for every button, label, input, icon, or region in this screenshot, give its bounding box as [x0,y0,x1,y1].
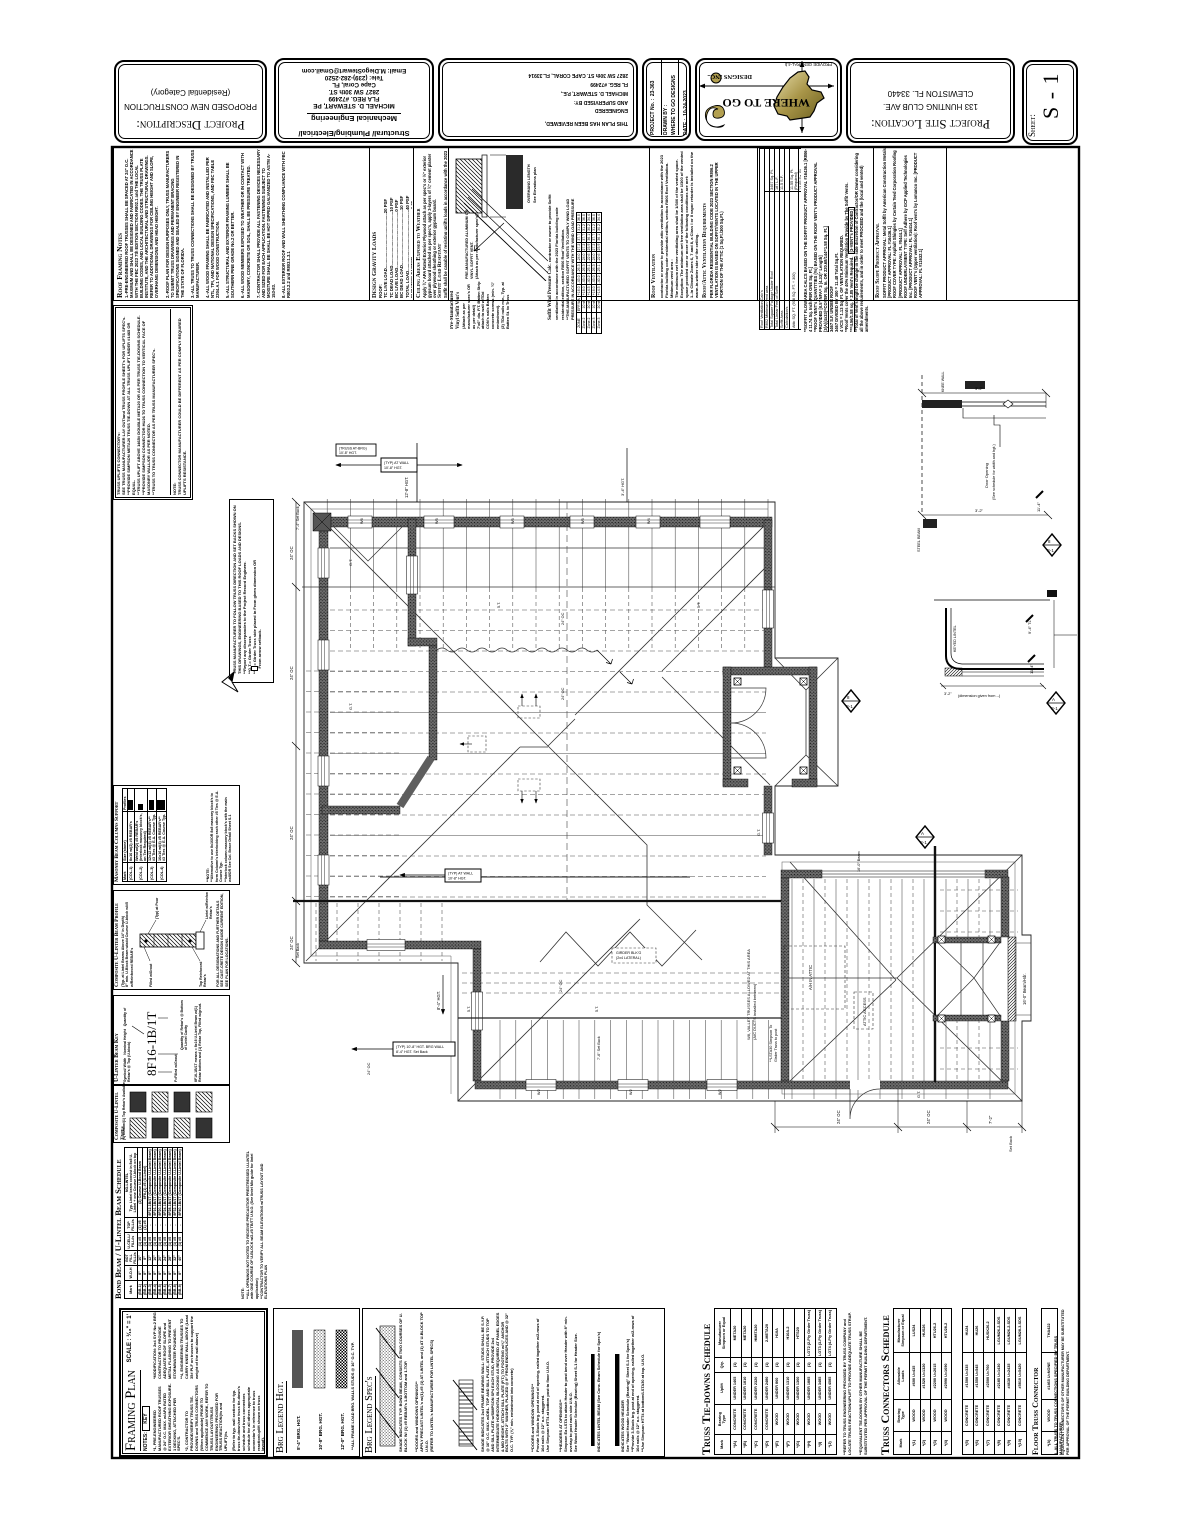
svg-text:10'-8" HGT.: 10'-8" HGT. [339,451,357,455]
svg-text:Door Opening: Door Opening [984,463,989,488]
svg-text:OVERHANG LENGTH: OVERHANG LENGTH [527,164,531,203]
svg-text:(Typ) at Pour: (Typ) at Pour [155,897,159,919]
svg-text:(Attach as per manufacturer sp: (Attach as per manufacturer spec's) [475,214,479,279]
svg-text:KNEE WALL: KNEE WALL [941,372,945,392]
svg-text:Rebar's: Rebar's [203,974,207,987]
svg-text:8'-4" HGT. Set Back: 8'-4" HGT. Set Back [396,1050,428,1054]
svg-text:W8, VALLEY TRUSSES ALLOWED AT: W8, VALLEY TRUSSES ALLOWED AT THIS AREA [746,949,751,1040]
svg-text:VINYL SOFFIT VENT.: VINYL SOFFIT VENT. [470,241,474,279]
svg-text:24" OC: 24" OC [289,936,294,950]
svg-text:STEEL BEAM: STEEL BEAM [917,528,921,552]
svg-text:10'-8" HGT.: 10'-8" HGT. [384,466,403,470]
svg-text:**ALL FRAME LOAD BRG. WALLS ST: **ALL FRAME LOAD BRG. WALLS STUDS @ 16" … [350,1342,355,1450]
svg-text:W2: W2 [718,1089,722,1095]
svg-text:24" OC: 24" OC [836,1110,841,1124]
svg-text:ATTIC ACCESS: ATTIC ACCESS [862,997,867,1026]
svg-text:S-1: S-1 [846,704,853,709]
svg-text:(See schedule for width and hg: (See schedule for width and hgt.) [992,444,996,500]
svg-text:(TYP) AT WALL: (TYP) AT WALL [448,872,473,876]
svg-text:8'-4" HGT.: 8'-4" HGT. [436,991,441,1010]
svg-text:S-1: S-1 [1047,548,1054,553]
svg-text:5.T.: 5.T. [697,602,701,608]
svg-text:G.T.: G.T. [348,559,353,566]
svg-text:7'-4" Set Back: 7'-4" Set Back [296,506,300,530]
svg-text:5.T.: 5.T. [595,1006,599,1012]
svg-text:24" OC: 24" OC [367,1062,371,1075]
svg-text:12'-8" HGT.: 12'-8" HGT. [404,477,409,498]
svg-text:KEYED LINTEL: KEYED LINTEL [953,625,957,652]
svg-text:(TRUSS AT-BRG): (TRUSS AT-BRG) [339,447,367,451]
svg-text:Filled w/Grout: Filled w/Grout [149,963,153,987]
svg-text:S-1: S-1 [920,840,927,845]
svg-text:12'-0" BRG. HGT.: 12'-0" BRG. HGT. [340,1413,345,1450]
svg-text:3'-2": 3'-2" [944,692,952,696]
svg-text:8'-4" BRG. HGT.: 8'-4" BRG. HGT. [296,1416,301,1450]
svg-text:Set Back: Set Back [1008,1136,1013,1152]
svg-text:24" OC: 24" OC [559,979,563,992]
svg-text:A/H IN ATTIC: A/H IN ATTIC [808,965,813,990]
svg-text:24" OC: 24" OC [289,546,294,560]
svg-text:A: A [1052,697,1055,702]
svg-text:10'-8" HGT.: 10'-8" HGT. [448,877,467,881]
svg-text:PRE-MANUFACTURED ALUMINUM OR: PRE-MANUFACTURED ALUMINUM OR [465,209,469,279]
svg-text:See Elevations plan: See Elevations plan [533,167,537,203]
svg-text:A: A [921,831,924,836]
svg-text:WHERE TO GO: WHERE TO GO [722,96,810,110]
svg-text:16'-0" Beam/Hdr.: 16'-0" Beam/Hdr. [1022,973,1027,1005]
svg-text:W2: W2 [629,1089,633,1095]
svg-text:11'-4": 11'-4" [1029,664,1034,674]
svg-text:W5: W5 [511,518,515,524]
svg-text:DESIGNS INC..: DESIGNS INC.. [707,73,752,80]
svg-text:24" OC: 24" OC [561,687,565,700]
svg-text:24" OC: 24" OC [561,612,565,625]
svg-text:24" OC: 24" OC [926,1110,931,1124]
svg-text:7'-2": 7'-2" [988,1115,993,1124]
svg-text:(TYP) AT WALL: (TYP) AT WALL [384,461,409,465]
svg-text:(TYP) 10'-8" HGT. BRG WALL: (TYP) 10'-8" HGT. BRG WALL [396,1045,444,1049]
svg-text:(A/C DUCTS installed between): (A/C DUCTS installed between) [752,983,757,1040]
svg-text:11'-4": 11'-4" [1036,502,1041,512]
svg-text:3'-2": 3'-2" [975,508,984,513]
svg-text:10'-8" BRG. HGT.: 10'-8" BRG. HGT. [318,1413,323,1450]
svg-text:W6: W6 [360,518,364,524]
svg-text:3'-2": 3'-2" [975,386,984,391]
svg-text:16'-0" Beam: 16'-0" Beam [857,851,861,872]
svg-text:GIRDER BLK'G: GIRDER BLK'G [616,951,641,955]
svg-text:W5: W5 [435,518,439,524]
svg-text:9'-4" TL: 9'-4" TL [1027,620,1032,634]
svg-text:5.T.: 5.T. [497,602,501,608]
svg-text:5.T.: 5.T. [467,1006,471,1012]
svg-text:(2x4 LATERAL): (2x4 LATERAL) [616,956,641,960]
svg-text:S-1: S-1 [1051,706,1058,711]
svg-text:W5: W5 [581,518,585,524]
svg-text:(dimension given from --): (dimension given from --) [958,694,1001,698]
svg-text:**LSTA30 Simpson To: **LSTA30 Simpson To [769,1025,773,1062]
svg-text:Rebar's: Rebar's [209,906,213,919]
svg-text:Girder Truss to post: Girder Truss to post [774,1028,778,1062]
svg-text:G.T.: G.T. [348,703,353,710]
svg-text:7'-6" Set Back: 7'-6" Set Back [597,1036,601,1060]
svg-text:3'-4" HGT.: 3'-4" HGT. [620,478,625,496]
svg-text:W4: W4 [647,518,651,524]
svg-text:PROVIDE GENERAL-4.b: PROVIDE GENERAL-4.b [784,62,832,67]
svg-text:G.T.: G.T. [756,829,761,836]
svg-text:Set Back: Set Back [296,943,300,958]
svg-text:24" OC: 24" OC [289,666,294,680]
svg-text:24" OC: 24" OC [289,826,294,840]
svg-text:W2: W2 [537,1089,541,1095]
svg-text:G.T.: G.T. [916,1091,921,1098]
